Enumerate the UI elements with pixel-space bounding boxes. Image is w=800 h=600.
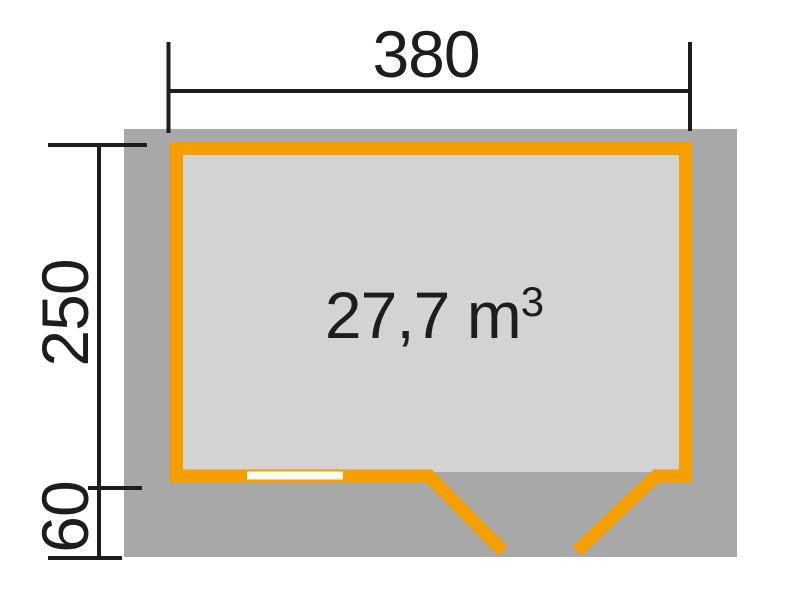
window-slot	[247, 472, 343, 480]
volume-label: 27,7 m3	[325, 278, 543, 352]
volume-exponent: 3	[521, 278, 543, 325]
floor-plan-page: 380 250 60 27,7 m3	[0, 0, 800, 600]
floor-plan-canvas: 380 250 60 27,7 m3	[0, 0, 800, 600]
width-dimension-label: 380	[372, 17, 479, 91]
volume-value: 27,7 m	[325, 278, 521, 352]
depth-dimension-label: 250	[28, 259, 102, 366]
overhang-dimension-label: 60	[28, 481, 102, 552]
